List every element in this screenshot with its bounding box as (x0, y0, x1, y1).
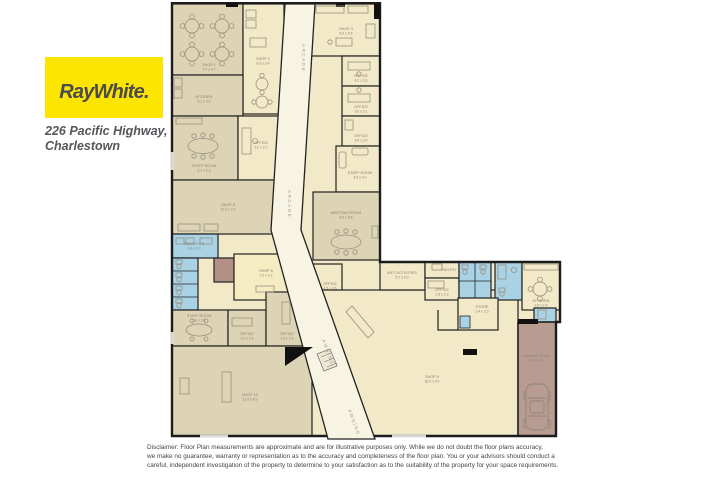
label-amenities: AMENITIES (184, 242, 205, 246)
property-address: 226 Pacific Highway, Charlestown (45, 124, 168, 154)
label-staff-2: STAFF ROOM (187, 314, 212, 318)
label-shop-9: SHOP 9 (425, 375, 439, 379)
label-office-3: OFFICE (280, 332, 294, 336)
room-shop-10 (172, 346, 322, 436)
label-office-1: OFFICE (254, 141, 268, 145)
label-office-r2: OFFICE (354, 105, 368, 109)
store-wet-fixture (460, 316, 470, 328)
svg-text:2.8 x 2.4: 2.8 x 2.4 (280, 337, 293, 341)
svg-text:5.6 x 3.1: 5.6 x 3.1 (192, 319, 205, 323)
svg-text:7.0 x 4.7: 7.0 x 4.7 (202, 68, 215, 72)
svg-text:18.0 x 9.0: 18.0 x 9.0 (425, 380, 440, 384)
label-staff-r: STAFF ROOM (348, 171, 373, 175)
label-shop-1: SHOP 1 (202, 63, 216, 67)
label-kitchen-1: KITCHEN (196, 95, 213, 99)
label-office-r1: OFFICE (354, 74, 368, 78)
svg-text:6.0 x 3.8: 6.0 x 3.8 (339, 216, 352, 220)
svg-text:3.0 x 2.7: 3.0 x 2.7 (254, 146, 267, 150)
label-office-s: OFFICE (435, 288, 449, 292)
disclaimer-line-1: Disclaimer: Floor Plan measurements are … (147, 443, 571, 452)
svg-text:10.2 x 7.0: 10.2 x 7.0 (221, 208, 236, 212)
svg-text:12.0 x 8.5: 12.0 x 8.5 (243, 398, 258, 402)
floor-plan: SHOP 1 7.0 x 4.7 SHOP 2 8.3 x 3.4 KITCHE… (170, 2, 567, 447)
svg-text:4.6 x 2.0: 4.6 x 2.0 (187, 247, 200, 251)
room-bathroom (495, 262, 522, 300)
label-wet-activities: WET ACTIVITIES (387, 271, 417, 275)
label-office-2: OFFICE (240, 332, 254, 336)
label-shop-10: SHOP 10 (242, 393, 258, 397)
svg-text:3.5 x 2.8: 3.5 x 2.8 (534, 304, 547, 308)
floor-plan-image: SHOP 1 7.0 x 4.7 SHOP 2 8.3 x 3.4 KITCHE… (170, 2, 567, 442)
label-staff-1: STAFF ROOM (192, 164, 217, 168)
room-store-brown (214, 258, 234, 282)
label-meeting: MEETING ROOM (331, 211, 361, 215)
svg-text:5.7 x 3.0: 5.7 x 3.0 (395, 276, 408, 280)
svg-text:7.0 x 4.2: 7.0 x 4.2 (259, 274, 272, 278)
arcade-label-1: ARCADE (301, 44, 306, 72)
room-meeting (313, 192, 380, 260)
svg-text:3.0 x 2.5: 3.0 x 2.5 (240, 337, 253, 341)
label-shop-2: SHOP 2 (256, 57, 270, 61)
disclaimer-line-3: careful, independent investigation of th… (147, 461, 571, 470)
label-store-s: STORE (475, 305, 488, 309)
address-line-2: Charlestown (45, 139, 168, 154)
disclaimer-text: Disclaimer: Floor Plan measurements are … (147, 443, 571, 470)
label-loading-dock: LOADING DOCK (521, 354, 551, 358)
room-office-2 (228, 310, 266, 346)
svg-text:4.5 x 3.6: 4.5 x 3.6 (323, 287, 336, 291)
label-shop-3: SHOP 3 (339, 27, 353, 31)
raywhite-logo-text: RayWhite. (59, 81, 148, 118)
svg-text:8.3 x 3.4: 8.3 x 3.4 (256, 62, 269, 66)
svg-text:3.6 x 3.1: 3.6 x 3.1 (354, 110, 367, 114)
svg-text:2.4 x 2.0: 2.4 x 2.0 (475, 310, 488, 314)
svg-text:4.5 x 4.0: 4.5 x 4.0 (353, 176, 366, 180)
svg-text:6.1 x 3.3: 6.1 x 3.3 (197, 169, 210, 173)
svg-text:10.4 x 3.4: 10.4 x 3.4 (529, 359, 544, 363)
label-office-j: OFFICE (323, 282, 337, 286)
label-office-r3: OFFICE (354, 134, 368, 138)
label-shop-6: SHOP 6 (259, 269, 273, 273)
arcade-label-2: ARCADE (287, 190, 292, 218)
svg-text:2.8 x 2.3: 2.8 x 2.3 (435, 293, 448, 297)
room-loading-dock (518, 322, 556, 436)
svg-text:5.1 x 3.6: 5.1 x 3.6 (197, 100, 210, 104)
raywhite-logo: RayWhite. (45, 57, 163, 118)
svg-text:3.6 x 3.0: 3.6 x 3.0 (354, 139, 367, 143)
svg-text:4.2 x 3.6: 4.2 x 3.6 (354, 79, 367, 83)
disclaimer-line-2: we make no guarantee, warranty or repres… (147, 452, 571, 461)
label-shop-5: SHOP 5 (221, 203, 235, 207)
label-kitchen-2: KITCHEN (533, 299, 550, 303)
room-staff-r (336, 146, 380, 192)
svg-text:8.0 x 5.5: 8.0 x 5.5 (339, 32, 352, 36)
label-pantry: PANTRY (441, 268, 457, 272)
address-line-1: 226 Pacific Highway, (45, 124, 168, 139)
